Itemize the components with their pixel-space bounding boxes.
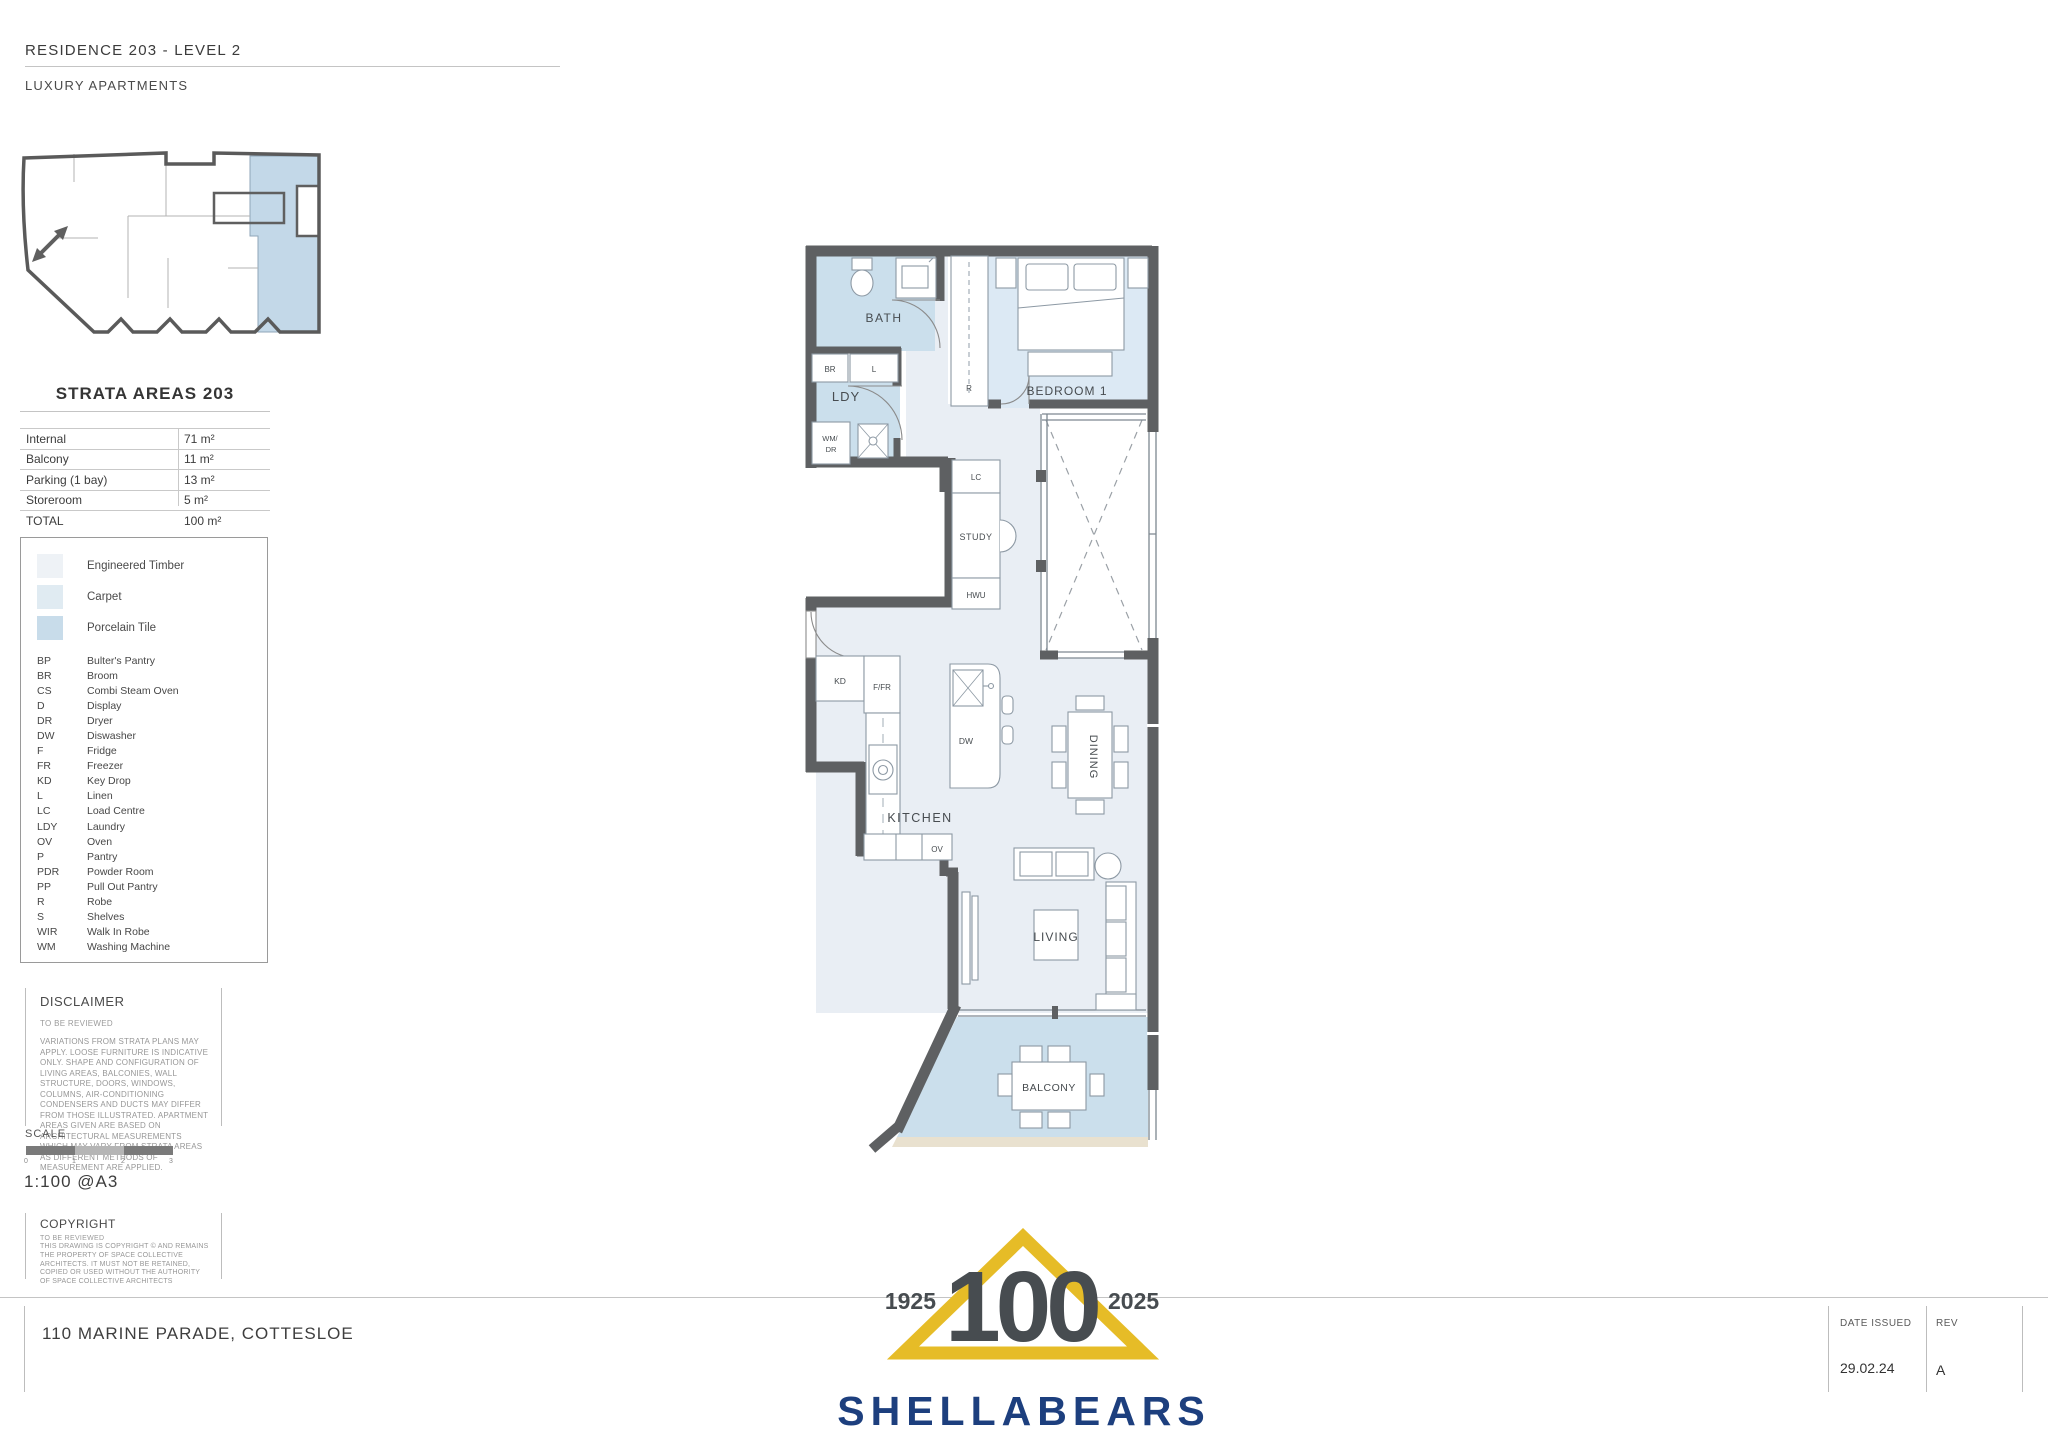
dw-label: DW	[959, 736, 973, 746]
tv-unit	[962, 892, 978, 984]
side-table	[1095, 853, 1121, 879]
north-arrow-icon	[32, 226, 68, 262]
footer-divider	[1926, 1306, 1927, 1392]
logo-100: 100	[945, 1251, 1098, 1363]
key-plan-highlighted-unit	[250, 156, 319, 332]
copyright-note: TO BE REVIEWED	[40, 1235, 211, 1242]
rev-value: A	[1936, 1362, 1945, 1378]
material-row: Carpet	[21, 581, 267, 612]
date-issued-label: DATE ISSUED	[1840, 1318, 1911, 1329]
abbreviation-row: WIR Walk In Robe	[21, 925, 267, 940]
floor-plan: BATH BR L LDY WM/ DR R BEDROOM 1 LC STUD…	[780, 230, 1180, 1180]
ov-label: OV	[931, 845, 943, 854]
abbreviation-row: PDR Powder Room	[21, 864, 267, 879]
sheet-subtitle: LUXURY APARTMENTS	[25, 78, 188, 93]
key-plan-core	[297, 186, 319, 236]
abbreviation-row: FR Freezer	[21, 759, 267, 774]
abbreviation-row: LC Load Centre	[21, 804, 267, 819]
abbreviation-row: D Display	[21, 698, 267, 713]
copyright-body: THIS DRAWING IS COPYRIGHT © AND REMAINS …	[40, 1243, 212, 1287]
sheet-title: RESIDENCE 203 - LEVEL 2	[25, 42, 241, 59]
copyright-box: COPYRIGHT TO BE REVIEWED THIS DRAWING IS…	[25, 1213, 222, 1279]
abbreviation-row: DR Dryer	[21, 713, 267, 728]
washer-dryer	[812, 422, 850, 464]
abbreviation-row: DW Diswasher	[21, 728, 267, 743]
kd-label: KD	[834, 676, 846, 686]
scale-bar	[26, 1146, 173, 1155]
material-row: Engineered Timber	[21, 550, 267, 581]
abbreviation-row: P Pantry	[21, 849, 267, 864]
scale-tick: 2	[121, 1158, 125, 1165]
lc-label: LC	[971, 473, 981, 482]
material-row: Porcelain Tile	[21, 612, 267, 643]
bedroom-label: BEDROOM 1	[1026, 384, 1107, 398]
abbreviation-row: L Linen	[21, 789, 267, 804]
material-swatch	[37, 585, 63, 609]
disclaimer-note: TO BE REVIEWED	[40, 1019, 211, 1028]
abbreviation-row: CS Combi Steam Oven	[21, 683, 267, 698]
abbreviation-row: BR Broom	[21, 668, 267, 683]
materials-legend: Engineered Timber Carpet Porcelain Tile	[21, 538, 267, 643]
toilet	[851, 258, 873, 296]
dining-label: DINING	[1087, 735, 1099, 780]
abbreviation-row: OV Oven	[21, 834, 267, 849]
material-swatch	[37, 616, 63, 640]
scale-tick: 1	[72, 1158, 76, 1165]
key-plan	[18, 138, 343, 353]
abbreviation-row: KD Key Drop	[21, 774, 267, 789]
scale-tick: 0	[24, 1158, 28, 1165]
ffr-label: F/FR	[873, 683, 891, 692]
footer-divider	[24, 1306, 25, 1392]
abbreviation-row: F Fridge	[21, 744, 267, 759]
logo-year-end: 2025	[1108, 1288, 1159, 1314]
date-issued-value: 29.02.24	[1840, 1360, 1895, 1376]
void	[1040, 412, 1148, 658]
strata-underline	[20, 411, 270, 412]
strata-row: Balcony 11 m²	[20, 449, 270, 470]
drawing-sheet: RESIDENCE 203 - LEVEL 2 LUXURY APARTMENT…	[0, 0, 2048, 1451]
l-label: L	[872, 365, 877, 374]
scale-label: SCALE	[25, 1128, 66, 1140]
legend-box: Engineered Timber Carpet Porcelain Tile …	[20, 537, 268, 963]
strata-row: Storeroom 5 m²	[20, 490, 270, 511]
abbreviation-row: LDY Laundry	[21, 819, 267, 834]
stool	[1002, 696, 1013, 714]
brand-wordmark: SHELLABEARS	[824, 1388, 1224, 1435]
strata-row: Internal 71 m²	[20, 428, 270, 449]
strata-column-divider	[178, 428, 179, 506]
scale-tick: 3	[169, 1158, 173, 1165]
stool	[1002, 726, 1013, 744]
laundry-trough	[858, 424, 888, 458]
abbreviation-row: BP Bulter's Pantry	[21, 653, 267, 668]
ldy-label: LDY	[832, 389, 860, 404]
disclaimer-title: DISCLAIMER	[40, 994, 211, 1009]
title-underline	[25, 66, 560, 67]
scale-ratio: 1:100 @A3	[24, 1172, 118, 1192]
logo-year-start: 1925	[885, 1288, 936, 1314]
disclaimer-box: DISCLAIMER TO BE REVIEWED VARIATIONS FRO…	[25, 988, 222, 1126]
abbreviation-row: R Robe	[21, 895, 267, 910]
scale-bar-segment	[124, 1146, 173, 1155]
strata-row: Parking (1 bay) 13 m²	[20, 469, 270, 490]
strata-table: Internal 71 m² Balcony 11 m² Parking (1 …	[20, 428, 270, 531]
copyright-title: COPYRIGHT	[40, 1217, 211, 1231]
robe-label: R	[966, 384, 972, 393]
abbreviation-row: WM Washing Machine	[21, 940, 267, 955]
living-label: LIVING	[1033, 930, 1078, 944]
strata-row: TOTAL 100 m²	[20, 510, 270, 531]
abbreviation-row: PP Pull Out Pantry	[21, 879, 267, 894]
kitchen-counter	[866, 713, 900, 851]
balcony-label: BALCONY	[1022, 1082, 1076, 1094]
project-address: 110 MARINE PARADE, COTTESLOE	[42, 1324, 354, 1344]
abbreviation-list: BP Bulter's Pantry BR Broom CS Combi Ste…	[21, 653, 267, 955]
rev-label: REV	[1936, 1318, 1958, 1329]
vanity	[896, 258, 936, 298]
abbreviation-row: S Shelves	[21, 910, 267, 925]
study-label: STUDY	[959, 532, 992, 542]
br-label: BR	[824, 365, 835, 374]
balcony-edge-strip	[892, 1137, 1148, 1147]
footer-divider	[1828, 1306, 1829, 1392]
kitchen-label: KITCHEN	[887, 811, 952, 825]
scale-bar-segment	[75, 1146, 124, 1155]
bath-label: BATH	[865, 311, 902, 325]
footer-divider	[2022, 1306, 2023, 1392]
material-swatch	[37, 554, 63, 578]
scale-bar-segment	[26, 1146, 75, 1155]
strata-title: STRATA AREAS 203	[20, 384, 270, 404]
hwu-label: HWU	[966, 591, 985, 600]
